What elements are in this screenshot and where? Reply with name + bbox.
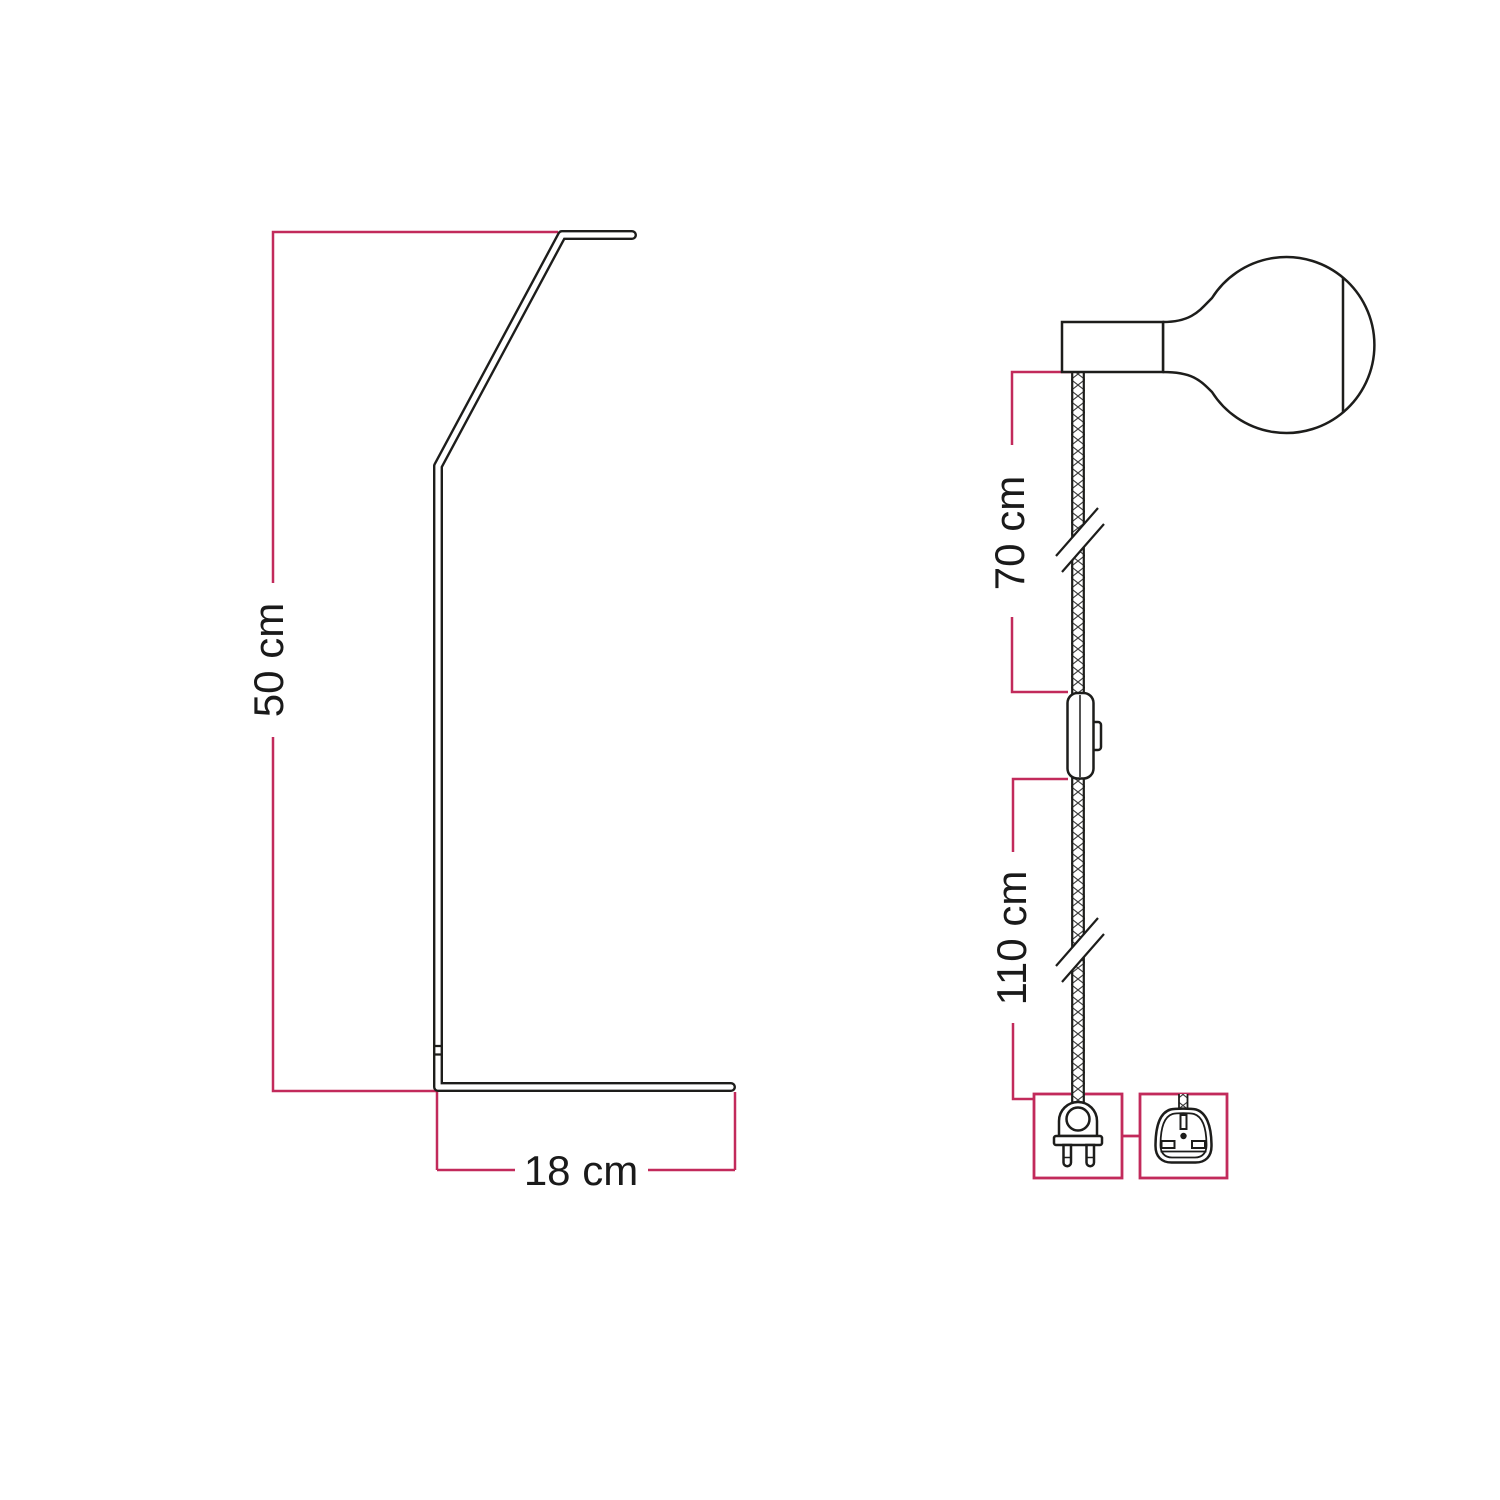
uk-plug-slot-left	[1162, 1141, 1175, 1148]
uk-plug	[1156, 1094, 1212, 1163]
height-dimension-label: 50 cm	[245, 603, 292, 717]
upper-cable-dimension-label: 70 cm	[986, 476, 1033, 590]
bulb-and-socket	[1062, 257, 1374, 433]
lower-cable-dimension-label: 110 cm	[988, 871, 1035, 1006]
eu-plug-cable-ring	[1067, 1108, 1090, 1131]
lower-cable-dimension: 110 cm	[988, 779, 1068, 1099]
dimension-diagram-page: 50 cm 18 cm 70 cm 110 cm	[0, 0, 1500, 1500]
depth-dimension: 18 cm	[437, 1092, 735, 1194]
stand-profile-figure: 50 cm 18 cm	[245, 232, 735, 1194]
dimension-diagram: 50 cm 18 cm 70 cm 110 cm	[0, 0, 1500, 1500]
dimension-line	[273, 737, 437, 1170]
eu-plug-pin-right	[1087, 1145, 1095, 1166]
depth-dimension-label: 18 cm	[524, 1147, 638, 1194]
lamp-socket-icon	[1062, 322, 1163, 372]
eu-plug	[1054, 1102, 1102, 1166]
eu-plug-face-plate	[1054, 1136, 1102, 1145]
inline-switch	[1068, 693, 1102, 779]
uk-plug-center-dot	[1180, 1133, 1186, 1139]
dimension-line	[1012, 372, 1071, 445]
uk-plug-earth-slot	[1181, 1115, 1187, 1129]
height-dimension: 50 cm	[245, 232, 558, 1170]
pendant-lamp-figure: 70 cm 110 cm	[986, 257, 1374, 1178]
stand-tube-outer	[438, 235, 731, 1087]
dimension-line	[1013, 1023, 1034, 1099]
dimension-line	[1013, 779, 1068, 852]
stand-tube-core	[438, 235, 731, 1087]
upper-cable-dimension: 70 cm	[986, 372, 1071, 692]
dimension-line	[273, 232, 558, 583]
eu-plug-pin-left	[1064, 1145, 1072, 1166]
dimension-line	[1012, 617, 1068, 692]
uk-plug-slot-right	[1192, 1141, 1205, 1148]
stand-tube-outline	[434, 235, 732, 1087]
